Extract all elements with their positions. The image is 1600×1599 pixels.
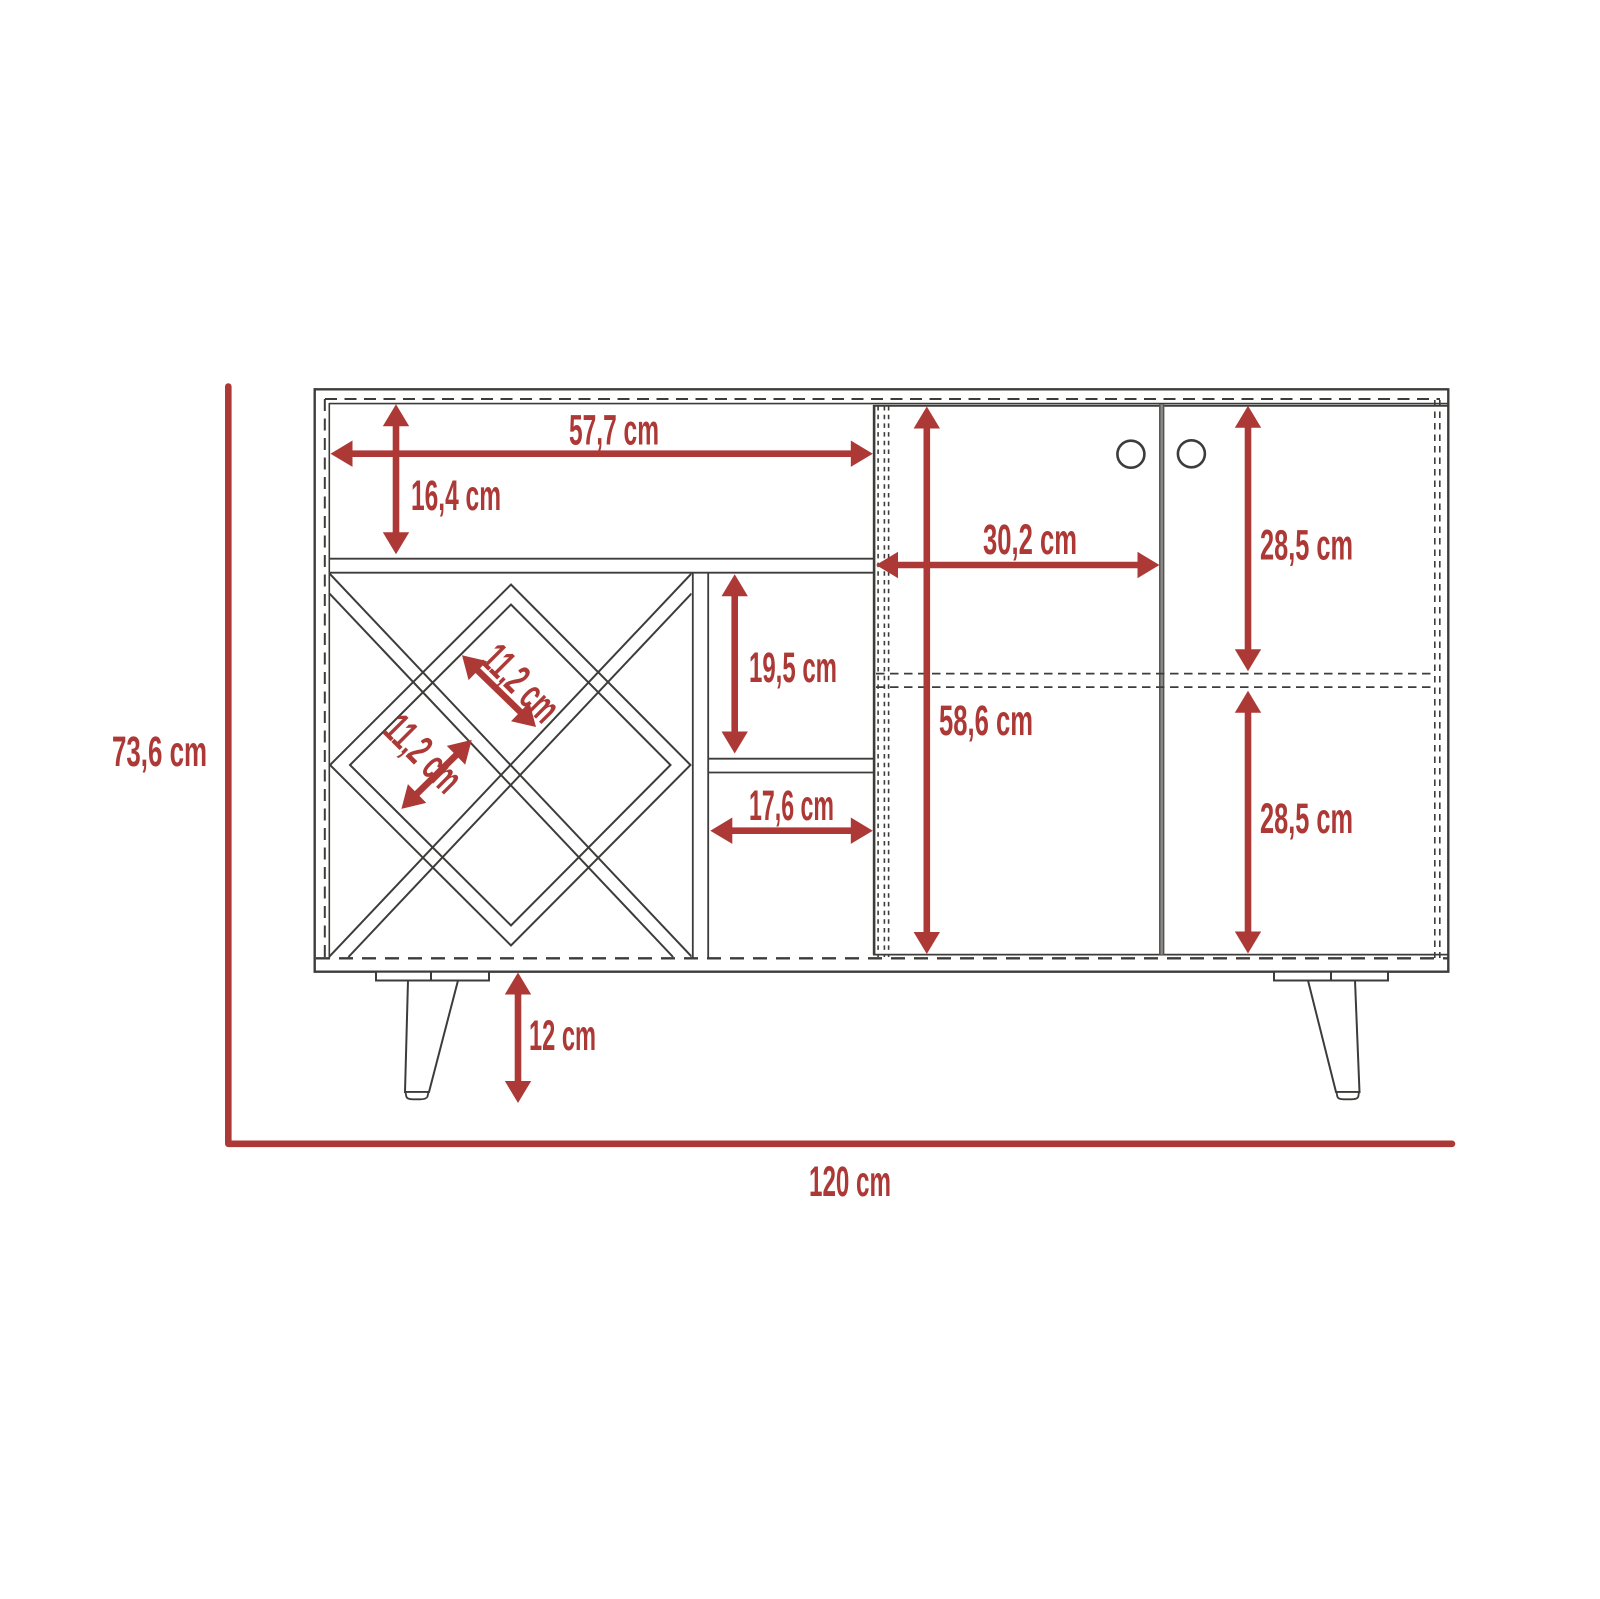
- svg-text:17,6 cm: 17,6 cm: [749, 783, 834, 830]
- svg-text:58,6 cm: 58,6 cm: [939, 698, 1033, 745]
- svg-text:16,4 cm: 16,4 cm: [411, 473, 501, 520]
- svg-text:30,2 cm: 30,2 cm: [983, 517, 1077, 564]
- svg-text:28,5 cm: 28,5 cm: [1260, 523, 1353, 570]
- svg-text:12 cm: 12 cm: [529, 1013, 596, 1060]
- svg-text:57,7 cm: 57,7 cm: [569, 408, 659, 455]
- svg-text:120 cm: 120 cm: [809, 1159, 891, 1206]
- svg-text:19,5 cm: 19,5 cm: [749, 645, 837, 692]
- svg-text:73,6 cm: 73,6 cm: [112, 729, 207, 776]
- svg-text:28,5 cm: 28,5 cm: [1260, 796, 1353, 843]
